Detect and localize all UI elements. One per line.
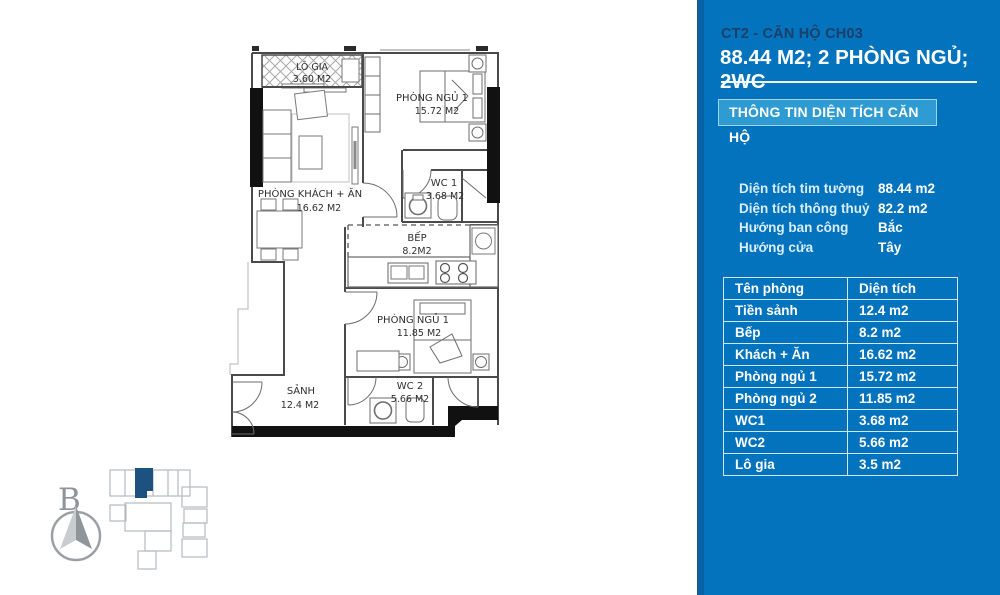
info-panel: CT2 - CĂN HỘ CH03 88.44 M2; 2 PHÒNG NGỦ;… xyxy=(697,0,1000,595)
detail-row: Hướng ban công Bắc xyxy=(739,218,979,238)
room-area-cell: 5.66 m2 xyxy=(848,432,958,454)
room-name-cell: WC1 xyxy=(724,410,848,432)
table-row: Bếp 8.2 m2 xyxy=(724,322,958,344)
detail-value: 88.44 m2 xyxy=(878,179,935,199)
room-name-cell: Bếp xyxy=(724,322,848,344)
col-header-area: Diện tích xyxy=(848,278,958,300)
unit-code: CT2 - CĂN HỘ CH03 xyxy=(721,26,863,42)
detail-value: Bắc xyxy=(878,218,903,238)
room-area-lo-gia: 3.60 M2 xyxy=(293,74,331,85)
room-name-cell: Khách + Ăn xyxy=(724,344,848,366)
detail-label: Diện tích thông thuỷ xyxy=(739,201,870,216)
room-name-cell: Phòng ngủ 2 xyxy=(724,388,848,410)
neighbor-outline xyxy=(230,262,248,375)
room-area-cell: 15.72 m2 xyxy=(848,366,958,388)
room-area-hall: 12.4 M2 xyxy=(281,400,319,411)
dining-set xyxy=(257,199,302,260)
table-row: Phòng ngủ 2 11.85 m2 xyxy=(724,388,958,410)
room-label-bedroom2: PHÒNG NGỦ 1 xyxy=(377,312,449,326)
table-row: Lô gia 3.5 m2 xyxy=(724,454,958,476)
detail-row: Diện tích thông thuỷ 82.2 m2 xyxy=(739,199,979,219)
room-area-cell: 16.62 m2 xyxy=(848,344,958,366)
room-label-bedroom1: PHÒNG NGỦ 1 xyxy=(396,90,468,104)
detail-value: Tây xyxy=(878,238,901,258)
room-label-living: PHÒNG KHÁCH + ĂN xyxy=(258,187,362,200)
room-label-wc2: WC 2 xyxy=(397,381,423,392)
col-header-room: Tên phòng xyxy=(724,278,848,300)
detail-row: Hướng cửa Tây xyxy=(739,238,979,258)
room-label-lo-gia: LÔ GIA xyxy=(296,61,329,73)
area-table: Tên phòng Diện tích Tiền sảnh 12.4 m2 Bế… xyxy=(723,277,958,476)
floor-plan-drawing: LÔ GIA 3.60 M2 PHÒNG NGỦ 1 15.72 M2 PHÒN… xyxy=(0,0,700,595)
table-row: WC2 5.66 m2 xyxy=(724,432,958,454)
room-name-cell: Phòng ngủ 1 xyxy=(724,366,848,388)
table-header-row: Tên phòng Diện tích xyxy=(724,278,958,300)
divider xyxy=(721,81,977,83)
table-row: Phòng ngủ 1 15.72 m2 xyxy=(724,366,958,388)
room-label-kitchen: BẾP xyxy=(407,230,426,244)
page: LÔ GIA 3.60 M2 PHÒNG NGỦ 1 15.72 M2 PHÒN… xyxy=(0,0,1000,595)
detail-value: 82.2 m2 xyxy=(878,199,928,219)
room-name-cell: Tiền sảnh xyxy=(724,300,848,322)
room-name-cell: WC2 xyxy=(724,432,848,454)
unit-summary: 88.44 M2; 2 PHÒNG NGỦ; 2WC xyxy=(720,46,1000,94)
room-area-wc2: 5.66 M2 xyxy=(391,394,429,405)
living-room-furniture xyxy=(263,90,358,184)
room-area-cell: 3.68 m2 xyxy=(848,410,958,432)
room-area-living: 16.62 M2 xyxy=(297,203,341,214)
room-area-cell: 11.85 m2 xyxy=(848,388,958,410)
room-area-bedroom2: 11.85 M2 xyxy=(397,328,441,339)
room-label-hall: SẢNH xyxy=(287,383,315,397)
room-name-cell: Lô gia xyxy=(724,454,848,476)
detail-row: Diện tích tim tường 88.44 m2 xyxy=(739,179,979,199)
room-label-wc1: WC 1 xyxy=(431,178,457,189)
section-header: THÔNG TIN DIỆN TÍCH CĂN HỘ xyxy=(718,99,937,126)
floor-plan: LÔ GIA 3.60 M2 PHÒNG NGỦ 1 15.72 M2 PHÒN… xyxy=(0,0,700,595)
table-row: Khách + Ăn 16.62 m2 xyxy=(724,344,958,366)
room-area-cell: 8.2 m2 xyxy=(848,322,958,344)
detail-label: Diện tích tim tường xyxy=(739,181,864,196)
table-row: Tiền sảnh 12.4 m2 xyxy=(724,300,958,322)
room-area-cell: 3.5 m2 xyxy=(848,454,958,476)
detail-label: Hướng cửa xyxy=(739,240,813,255)
key-plan xyxy=(110,468,207,569)
room-area-wc1: 3.68 M2 xyxy=(426,191,464,202)
room-area-bedroom1: 15.72 M2 xyxy=(415,106,459,117)
key-plan-highlighted-unit xyxy=(135,468,153,498)
window-ticks xyxy=(252,46,488,51)
table-row: WC1 3.68 m2 xyxy=(724,410,958,432)
room-area-cell: 12.4 m2 xyxy=(848,300,958,322)
detail-label: Hướng ban công xyxy=(739,220,848,235)
compass: B xyxy=(52,482,100,560)
detail-list: Diện tích tim tường 88.44 m2 Diện tích t… xyxy=(739,179,979,257)
room-area-kitchen: 8.2M2 xyxy=(402,246,431,257)
